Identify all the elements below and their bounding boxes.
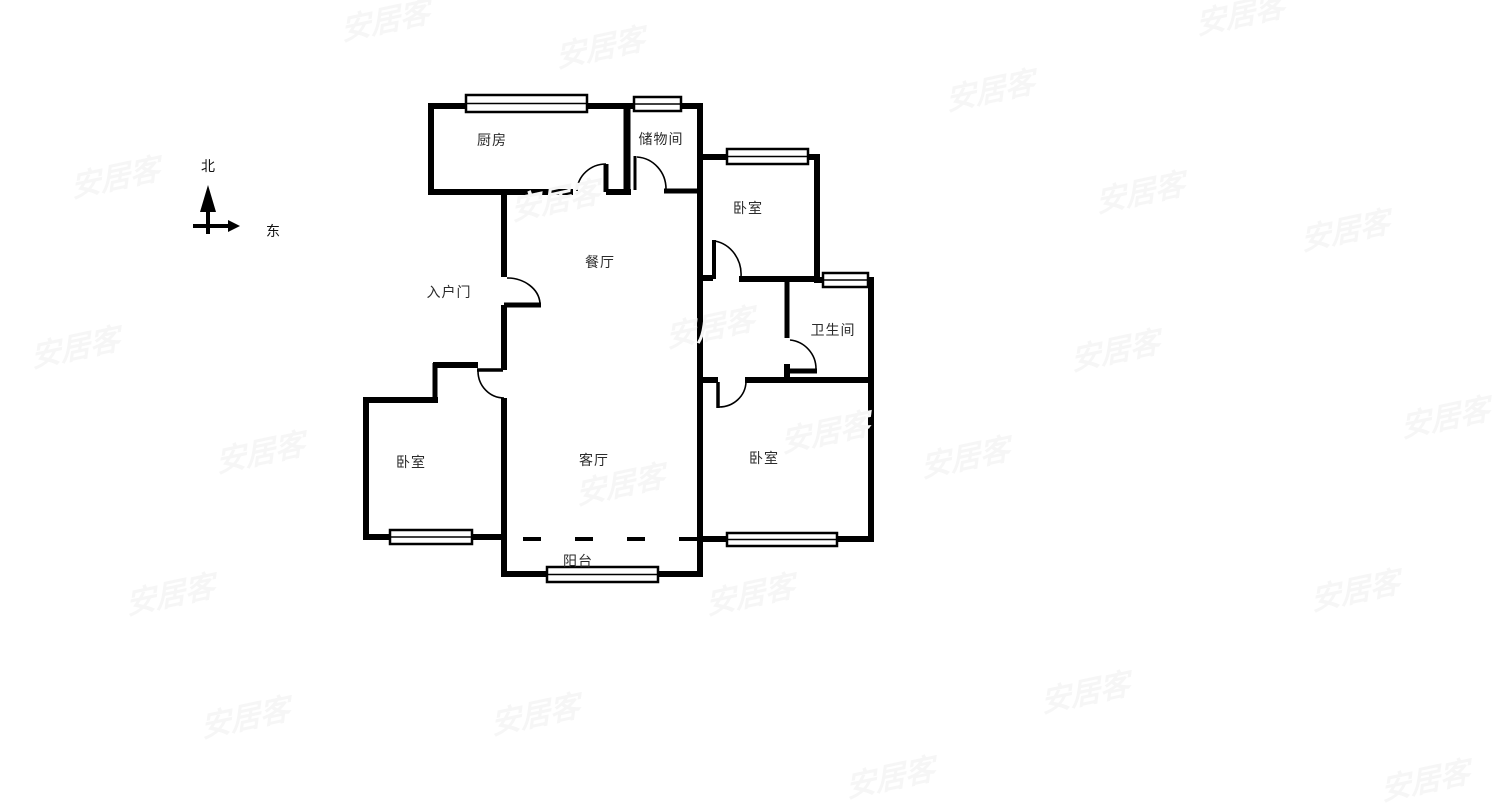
- floorplan-stage: 安居客安居客安居客安居客安居客安居客安居客安居客安居客安居客安居客安居客安居客安…: [0, 0, 1510, 800]
- entry-door-arc: [507, 278, 540, 303]
- bedroom-l-door-arc: [478, 371, 504, 398]
- compass-north-arrowhead: [200, 185, 216, 212]
- bathroom-door-arc: [790, 340, 816, 369]
- room-label-living: 客厅: [579, 450, 609, 470]
- room-label-balcony: 阳台: [563, 551, 593, 571]
- room-label-bedroom-top-right: 卧室: [733, 198, 763, 218]
- compass-east-label: 东: [266, 221, 280, 241]
- room-label-bedroom-bottom-right: 卧室: [749, 448, 779, 468]
- room-label-bathroom: 卫生间: [811, 320, 856, 340]
- room-label-kitchen: 厨房: [477, 130, 507, 150]
- compass-east-arrowhead: [228, 220, 240, 232]
- kitchen-door-arc: [577, 164, 606, 191]
- floorplan-drawing: [0, 0, 1510, 800]
- room-label-entry-door: 入户门: [427, 282, 472, 302]
- exterior-and-interior-walls: [363, 103, 874, 577]
- room-label-storage: 储物间: [639, 129, 684, 149]
- compass: [193, 185, 240, 234]
- bedroom-br-door-arc: [719, 382, 746, 407]
- room-label-bedroom-left: 卧室: [396, 452, 426, 472]
- room-label-dining: 餐厅: [585, 252, 615, 272]
- bedroom-tr-door-arc: [715, 241, 741, 277]
- compass-north-label: 北: [201, 156, 215, 176]
- storage-door-arc: [637, 157, 666, 189]
